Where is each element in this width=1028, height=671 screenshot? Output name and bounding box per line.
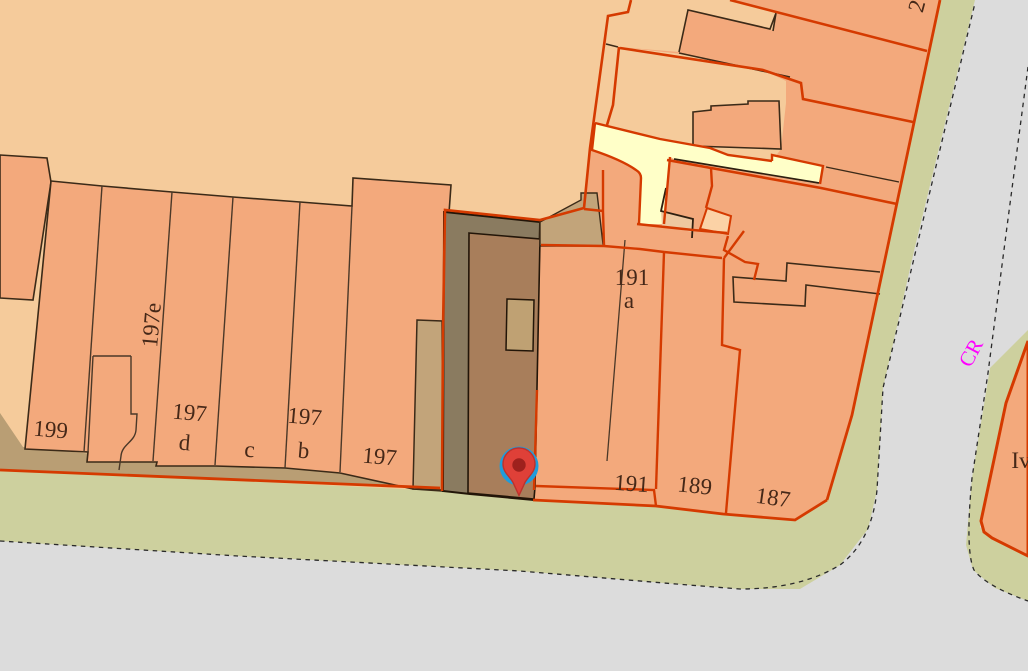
svg-text:197e: 197e [137, 302, 166, 349]
svg-text:c: c [243, 437, 255, 463]
svg-text:Iv: Iv [1011, 448, 1028, 473]
svg-text:197: 197 [361, 443, 398, 471]
svg-text:189: 189 [676, 471, 713, 499]
svg-text:199: 199 [32, 416, 69, 444]
svg-text:187: 187 [754, 483, 792, 513]
svg-text:b: b [297, 438, 311, 464]
svg-text:197: 197 [286, 403, 323, 431]
svg-text:191: 191 [613, 470, 649, 497]
svg-text:191: 191 [615, 265, 650, 290]
svg-text:197: 197 [171, 399, 208, 427]
svg-text:a: a [624, 288, 634, 313]
